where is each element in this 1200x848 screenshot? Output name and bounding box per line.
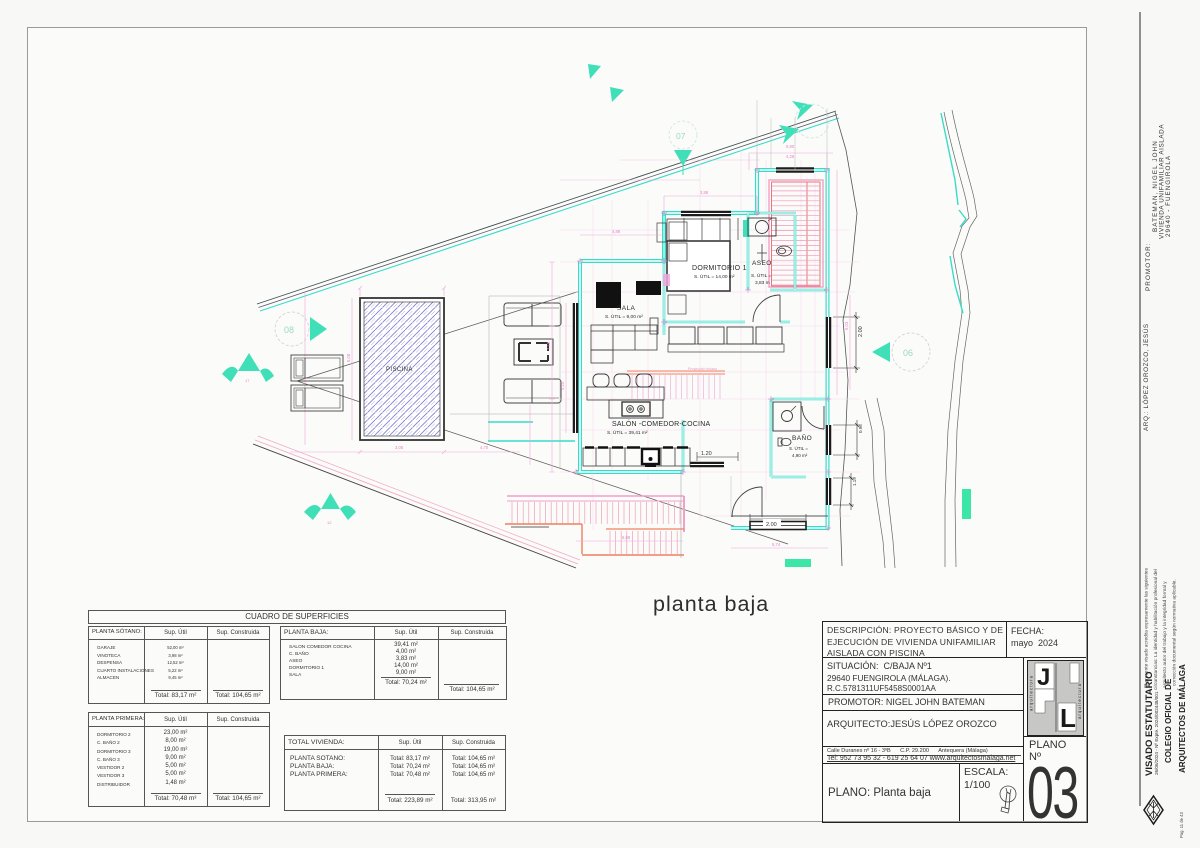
svg-text:corrección documental según no: corrección documental según normativa ap… — [1172, 579, 1178, 686]
svg-text:COLEGIO OFICIAL DE: COLEGIO OFICIAL DE — [1164, 678, 1173, 763]
svg-text:El presente visado acredita ex: El presente visado acredita expresamente… — [1144, 567, 1150, 688]
svg-text:Pag. 11 de 43: Pag. 11 de 43 — [1179, 812, 1184, 838]
svg-text:arquitecto autor del trabajo y: arquitecto autor del trabajo y la integr… — [1162, 581, 1168, 688]
svg-text:ARQUITECTOS DE MÁLAGA: ARQUITECTOS DE MÁLAGA — [1178, 664, 1187, 773]
svg-text:PROMOTOR:: PROMOTOR: — [1145, 242, 1152, 291]
svg-text:ARQ.: LÓPEZ OROZCO, JESÚS: ARQ.: LÓPEZ OROZCO, JESÚS — [1141, 323, 1150, 431]
svg-text:29640 - FUENGIROLA: 29640 - FUENGIROLA — [1165, 155, 1172, 237]
svg-text:26/06/2024 - Nº Expte. 2024/00: 26/06/2024 - Nº Expte. 2024/002448/001 — [1154, 691, 1159, 775]
